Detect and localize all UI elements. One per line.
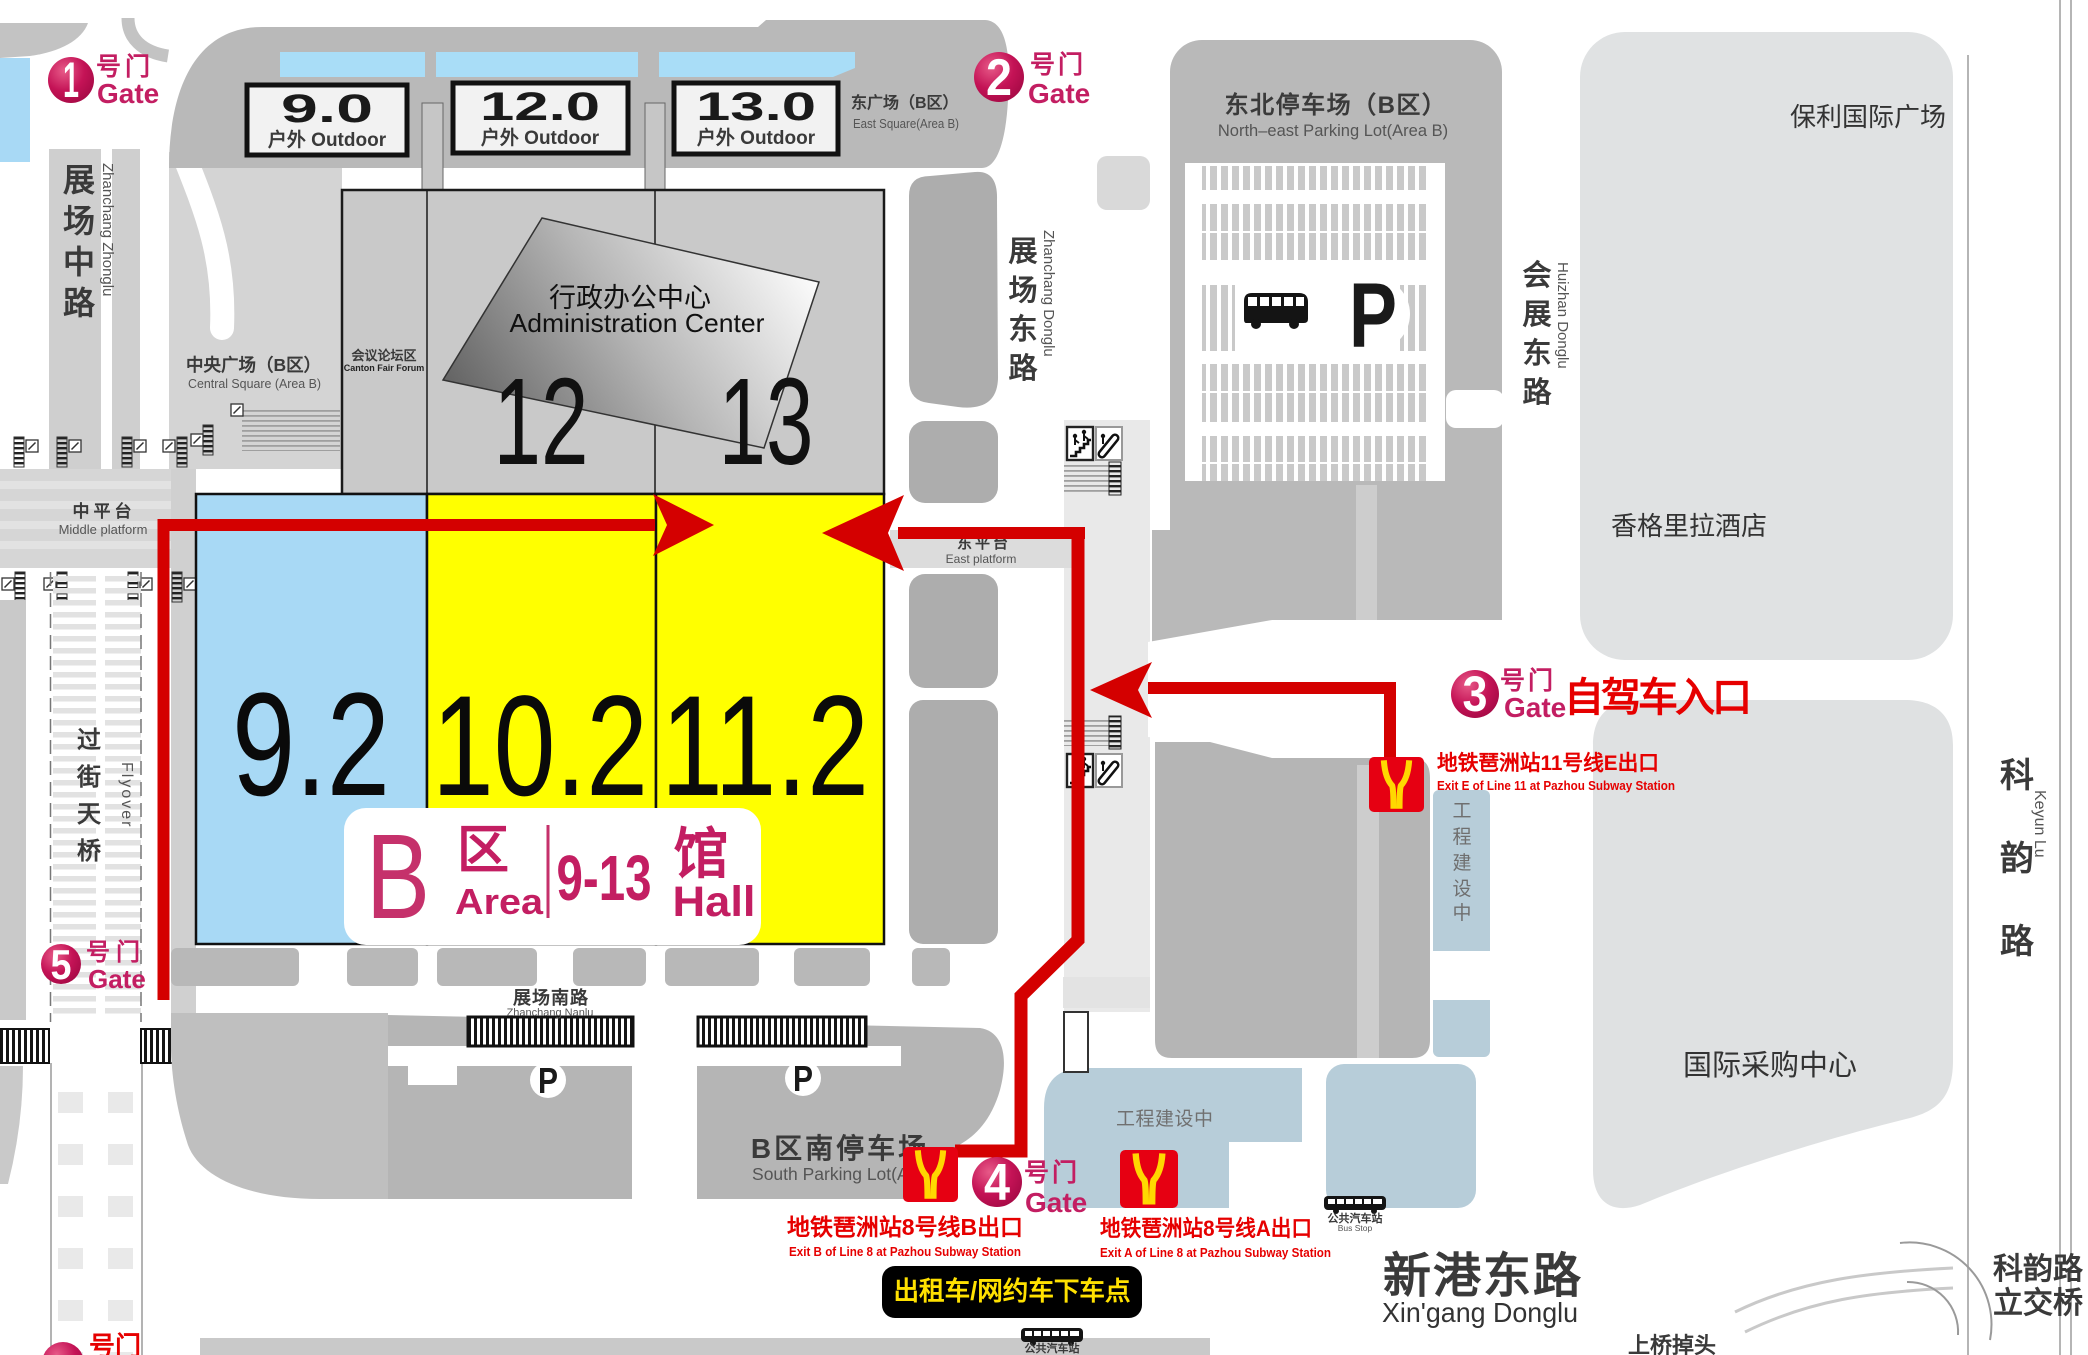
- svg-text:Huizhan Donglu: Huizhan Donglu: [1554, 262, 1571, 369]
- svg-text:国际采购中心: 国际采购中心: [1683, 1049, 1857, 1082]
- svg-text:中: 中: [1452, 902, 1471, 924]
- svg-text:Zhanchang Nanlu: Zhanchang Nanlu: [507, 1007, 594, 1019]
- svg-text:上桥掉头: 上桥掉头: [1628, 1333, 1716, 1355]
- svg-text:地铁琶洲站8号线B出口: 地铁琶洲站8号线B出口: [787, 1214, 1023, 1240]
- svg-text:立交桥: 立交桥: [1993, 1286, 2083, 1320]
- svg-text:Gate: Gate: [97, 78, 159, 109]
- svg-text:街: 街: [76, 763, 101, 791]
- svg-text:东: 东: [1522, 336, 1551, 370]
- svg-text:12: 12: [494, 354, 589, 491]
- svg-text:4: 4: [984, 1154, 1010, 1212]
- svg-text:Exit E of Line 11 at Pazhou Su: Exit E of Line 11 at Pazhou Subway Stati…: [1437, 778, 1675, 793]
- svg-text:设: 设: [1452, 878, 1471, 900]
- svg-text:区: 区: [457, 822, 509, 880]
- svg-text:East Square(Area B): East Square(Area B): [853, 116, 959, 131]
- svg-text:公共汽车站: 公共汽车站: [1025, 1341, 1080, 1355]
- svg-text:过: 过: [77, 727, 101, 754]
- svg-text:Gate: Gate: [1028, 78, 1090, 109]
- svg-text:程: 程: [1452, 826, 1471, 848]
- svg-text:Flyover: Flyover: [118, 762, 135, 828]
- svg-text:Zhanchang Donglu: Zhanchang Donglu: [1040, 230, 1057, 357]
- svg-text:科: 科: [2000, 757, 2034, 795]
- svg-text:Administration Center: Administration Center: [510, 308, 765, 338]
- svg-text:Central Square (Area B): Central Square (Area B): [188, 376, 321, 391]
- svg-text:Exit B of Line 8 at Pazhou Sub: Exit B of Line 8 at Pazhou Subway Statio…: [789, 1244, 1021, 1259]
- svg-text:路: 路: [2000, 923, 2035, 961]
- svg-text:号门: 号门: [89, 1331, 141, 1355]
- svg-text:B区南停车场: B区南停车场: [751, 1132, 929, 1164]
- svg-text:号门: 号门: [1024, 1158, 1080, 1187]
- svg-text:出租车/网约车下车点: 出租车/网约车下车点: [894, 1276, 1131, 1306]
- svg-text:路: 路: [1008, 352, 1038, 385]
- svg-text:自驾车入口: 自驾车入口: [1564, 676, 1749, 720]
- svg-text:工: 工: [1452, 801, 1471, 822]
- svg-text:Canton Fair Forum: Canton Fair Forum: [344, 363, 425, 373]
- svg-text:号门: 号门: [96, 52, 154, 81]
- svg-text:Keyun Lu: Keyun Lu: [2031, 790, 2048, 858]
- svg-text:Exit A of Line 8 at Pazhou Sub: Exit A of Line 8 at Pazhou Subway Statio…: [1100, 1245, 1331, 1260]
- svg-text:2: 2: [986, 49, 1012, 107]
- svg-text:户外 Outdoor: 户外 Outdoor: [481, 126, 600, 149]
- svg-text:号门: 号门: [1030, 50, 1086, 79]
- svg-text:馆: 馆: [673, 823, 728, 885]
- svg-text:东广场（B区）: 东广场（B区）: [851, 93, 959, 112]
- svg-text:P: P: [793, 1058, 813, 1099]
- svg-text:地铁琶洲站8号线A出口: 地铁琶洲站8号线A出口: [1100, 1216, 1312, 1241]
- svg-text:展: 展: [1008, 236, 1037, 268]
- svg-text:展场南路: 展场南路: [513, 987, 589, 1008]
- svg-text:韵: 韵: [2000, 840, 2034, 878]
- svg-text:1: 1: [63, 52, 79, 108]
- svg-text:North–east Parking Lot(Area B): North–east Parking Lot(Area B): [1218, 122, 1448, 140]
- svg-text:Xin'gang Donglu: Xin'gang Donglu: [1382, 1297, 1578, 1328]
- svg-text:12.0: 12.0: [480, 85, 600, 129]
- svg-text:场: 场: [63, 203, 95, 239]
- svg-text:11.2: 11.2: [661, 667, 869, 826]
- svg-text:建: 建: [1452, 852, 1471, 874]
- svg-text:保利国际广场: 保利国际广场: [1790, 102, 1946, 132]
- svg-text:Middle platform: Middle platform: [59, 522, 148, 537]
- svg-text:户外 Outdoor: 户外 Outdoor: [697, 126, 816, 149]
- svg-text:Zhanchang Zhonglu: Zhanchang Zhonglu: [99, 163, 116, 296]
- svg-text:地铁琶洲站11号线E出口: 地铁琶洲站11号线E出口: [1437, 751, 1659, 775]
- svg-text:13: 13: [719, 354, 814, 491]
- svg-text:场: 场: [1008, 274, 1037, 307]
- svg-text:东: 东: [1008, 312, 1037, 346]
- svg-text:香格里拉酒店: 香格里拉酒店: [1611, 511, 1767, 541]
- svg-text:户外 Outdoor: 户外 Outdoor: [268, 128, 387, 151]
- svg-text:号门: 号门: [1500, 666, 1556, 695]
- svg-text:路: 路: [1522, 376, 1552, 409]
- svg-text:B: B: [366, 808, 430, 944]
- svg-text:9-13: 9-13: [557, 842, 652, 914]
- svg-text:中平台: 中平台: [73, 501, 136, 521]
- svg-text:Gate: Gate: [1025, 1187, 1087, 1218]
- svg-text:科韵路: 科韵路: [1993, 1252, 2084, 1286]
- svg-text:桥: 桥: [77, 838, 102, 865]
- svg-text:East platform: East platform: [946, 552, 1017, 566]
- svg-text:3: 3: [1463, 666, 1488, 722]
- svg-text:P: P: [538, 1060, 558, 1101]
- svg-text:Hall: Hall: [673, 878, 756, 926]
- svg-text:会议论坛区: 会议论坛区: [351, 348, 416, 363]
- svg-text:Gate: Gate: [1504, 692, 1566, 723]
- svg-text:中央广场（B区）: 中央广场（B区）: [186, 355, 321, 375]
- svg-text:9.0: 9.0: [281, 87, 373, 131]
- svg-text:9.2: 9.2: [232, 663, 390, 827]
- svg-text:Area: Area: [455, 881, 544, 922]
- svg-text:展: 展: [63, 162, 95, 198]
- svg-text:会: 会: [1522, 259, 1551, 292]
- svg-text:中: 中: [63, 244, 95, 280]
- svg-text:路: 路: [63, 285, 96, 321]
- svg-text:东北停车场（B区）: 东北停车场（B区）: [1225, 91, 1448, 119]
- svg-text:P: P: [1349, 265, 1397, 367]
- svg-text:10.2: 10.2: [432, 667, 648, 826]
- svg-text:展: 展: [1522, 299, 1551, 331]
- svg-text:号门: 号门: [86, 938, 146, 966]
- svg-text:新港东路: 新港东路: [1383, 1250, 1583, 1303]
- svg-text:工程建设中: 工程建设中: [1116, 1108, 1214, 1130]
- svg-text:Bus Stop: Bus Stop: [1338, 1223, 1373, 1233]
- svg-text:5: 5: [51, 941, 72, 988]
- svg-text:Gate: Gate: [88, 964, 146, 994]
- svg-text:13.0: 13.0: [696, 85, 816, 129]
- svg-text:天: 天: [77, 801, 101, 828]
